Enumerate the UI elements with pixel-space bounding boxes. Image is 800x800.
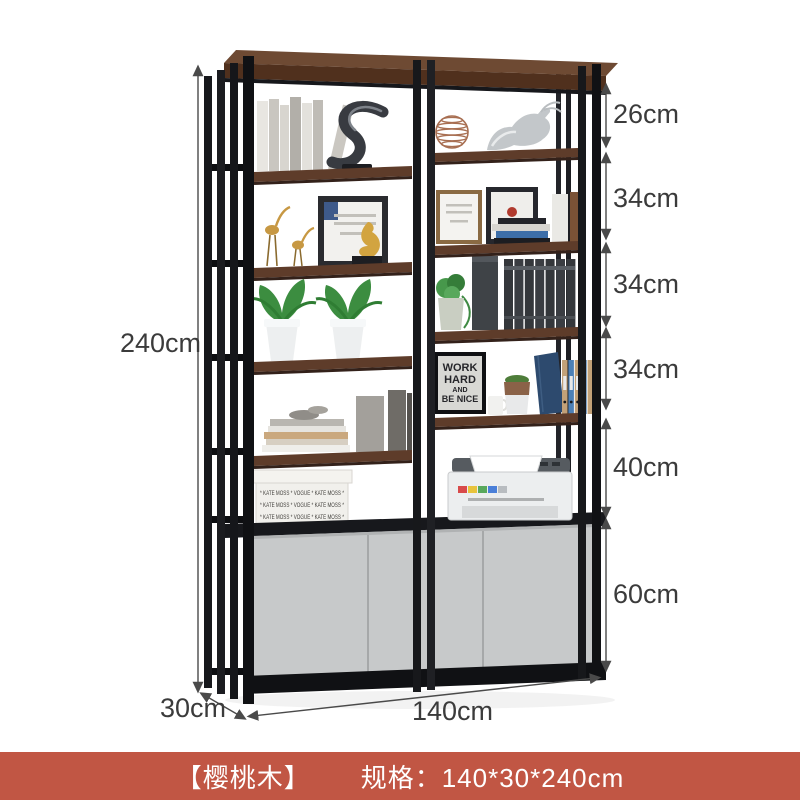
dim-label-section-34a: 34cm: [613, 185, 679, 212]
box-pattern-text: * KATE MOSS * VOGUE * KATE MOSS *: [260, 490, 344, 497]
caption-spec: 规格：140*30*240cm: [361, 758, 625, 795]
dim-label-width: 140cm: [412, 698, 493, 725]
box-pattern-text: * KATE MOSS * VOGUE * KATE MOSS *: [260, 502, 344, 509]
dim-label-section-60: 60cm: [613, 581, 679, 608]
wire-ball-ornament: [436, 116, 468, 148]
mug: [488, 396, 507, 415]
poster-line: AND: [452, 387, 467, 394]
poster-work-hard: WORK HARD AND BE NICE: [434, 352, 486, 414]
poster-line: HARD: [444, 374, 476, 386]
potted-plant: [316, 279, 382, 361]
planter: [504, 375, 530, 414]
printer: [448, 456, 572, 520]
dim-label-section-34c: 34cm: [613, 356, 679, 383]
left-slat-panel: [204, 56, 254, 704]
cabinet-doors: [253, 524, 598, 678]
caption-bar: 【樱桃木】 规格：140*30*240cm: [0, 752, 800, 800]
deer-sculpture: [487, 102, 561, 150]
shelf-illustration: * KATE MOSS * VOGUE * KATE MOSS * * KATE…: [0, 0, 800, 800]
potted-plant: [250, 279, 316, 361]
stacked-books: [492, 218, 550, 244]
box-pattern-text: * KATE MOSS * VOGUE * KATE MOSS *: [260, 514, 344, 521]
dim-label-total-height: 240cm: [120, 330, 201, 357]
upright-books: [356, 390, 412, 452]
bird-ornaments: [265, 207, 314, 266]
product-image: * KATE MOSS * VOGUE * KATE MOSS * * KATE…: [0, 0, 800, 800]
book-stack: [262, 406, 350, 452]
bookend-books: [552, 192, 578, 244]
dim-label-depth: 30cm: [160, 695, 226, 722]
poster-line: BE NICE: [442, 394, 479, 404]
dim-label-section-34b: 34cm: [613, 271, 679, 298]
book-volumes: [472, 256, 575, 330]
hanging-plant: [436, 274, 470, 330]
poster-line: WORK: [443, 362, 478, 374]
dim-label-section-26: 26cm: [613, 101, 679, 128]
caption-material: 【樱桃木】: [176, 758, 311, 795]
dim-label-section-40: 40cm: [613, 454, 679, 481]
